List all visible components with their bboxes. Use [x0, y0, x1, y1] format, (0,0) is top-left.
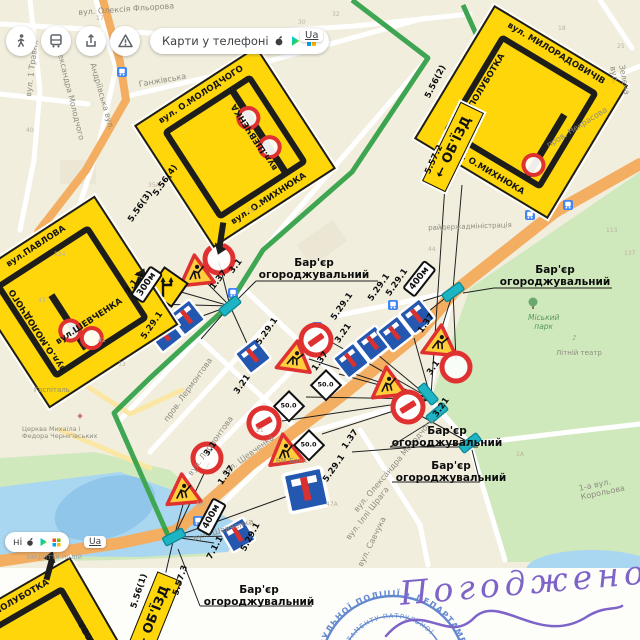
google-play-logo	[290, 35, 301, 47]
left-arrow-icon: ←	[432, 164, 450, 180]
transit-mode-button[interactable]	[41, 26, 71, 56]
share-icon	[83, 33, 99, 49]
store-grid-logo	[52, 538, 61, 547]
detour-scheme-document: ПАТРУЛЬНОЇ ПОЛІЦІЇ • ДЕПАРТАМЕНТУ ПАТРУЛ…	[0, 0, 640, 640]
report-problem-button[interactable]	[110, 26, 140, 56]
maps-on-phone-pill-cut[interactable]: ні	[5, 532, 69, 552]
google-play-logo	[39, 537, 48, 547]
walk-mode-button[interactable]	[6, 26, 36, 56]
language-button[interactable]: Ua	[300, 29, 323, 42]
apple-logo	[26, 537, 35, 547]
walk-icon	[13, 33, 29, 49]
apple-logo	[274, 35, 285, 47]
maps-on-phone-label: Карти у телефоні	[162, 34, 269, 48]
warning-icon	[117, 33, 134, 49]
left-arrow-icon: ←	[134, 635, 152, 640]
share-button[interactable]	[76, 26, 106, 56]
pill-cut-label: ні	[13, 537, 22, 548]
bus-icon	[48, 33, 64, 49]
language-button-cut[interactable]: Ua	[84, 536, 106, 548]
